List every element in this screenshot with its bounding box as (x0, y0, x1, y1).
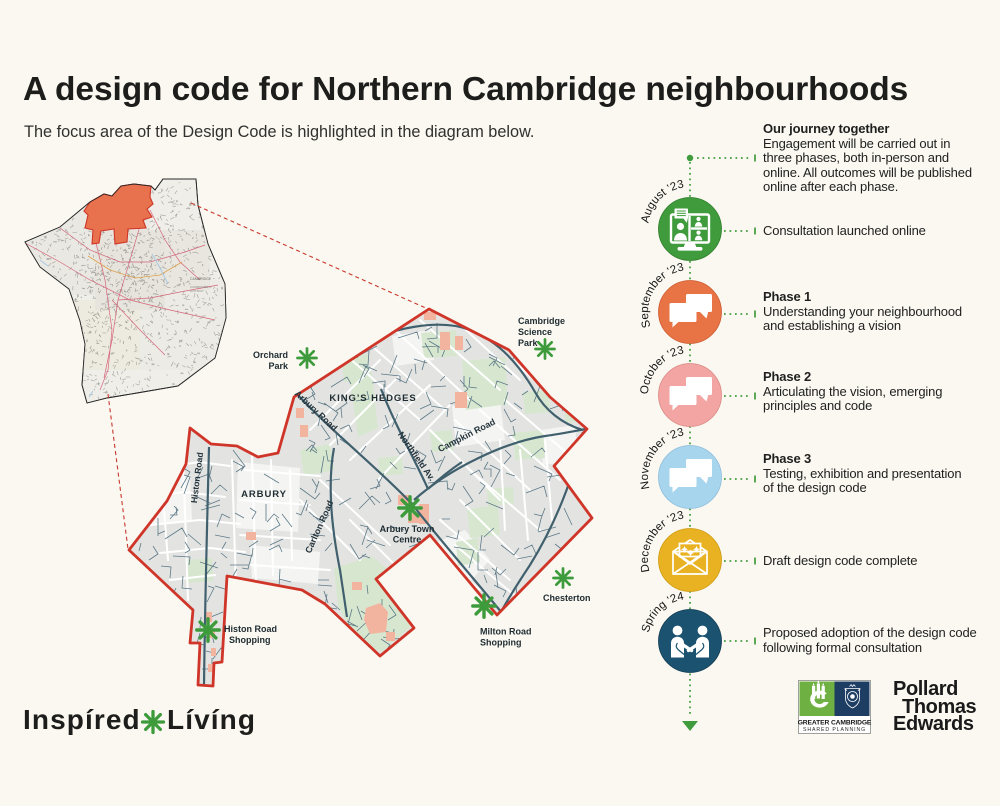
svg-text:Centre: Centre (393, 535, 422, 545)
svg-text:Histon Road: Histon Road (224, 624, 277, 634)
svg-text:Cambridge: Cambridge (518, 316, 565, 326)
svg-text:KING’S HEDGES: KING’S HEDGES (329, 393, 416, 404)
svg-text:Shopping: Shopping (480, 638, 522, 648)
svg-text:Park: Park (268, 361, 289, 371)
svg-text:CAMBRIDGE: CAMBRIDGE (190, 277, 212, 281)
svg-text:SHARED PLANNING: SHARED PLANNING (803, 727, 866, 733)
svg-text:Milton Road: Milton Road (480, 627, 532, 637)
svg-text:ARBURY: ARBURY (241, 489, 287, 500)
svg-text:Orchard: Orchard (253, 350, 288, 360)
svg-text:Shopping: Shopping (229, 635, 271, 645)
svg-text:Park: Park (518, 338, 539, 348)
svg-text:Chesterton: Chesterton (543, 593, 591, 603)
svg-text:DISTRICT: DISTRICT (190, 289, 204, 293)
svg-text:GREATER CAMBRIDGE: GREATER CAMBRIDGE (798, 720, 872, 727)
svg-text:Arbury Town: Arbury Town (380, 524, 435, 534)
svg-text:Science: Science (518, 327, 552, 337)
